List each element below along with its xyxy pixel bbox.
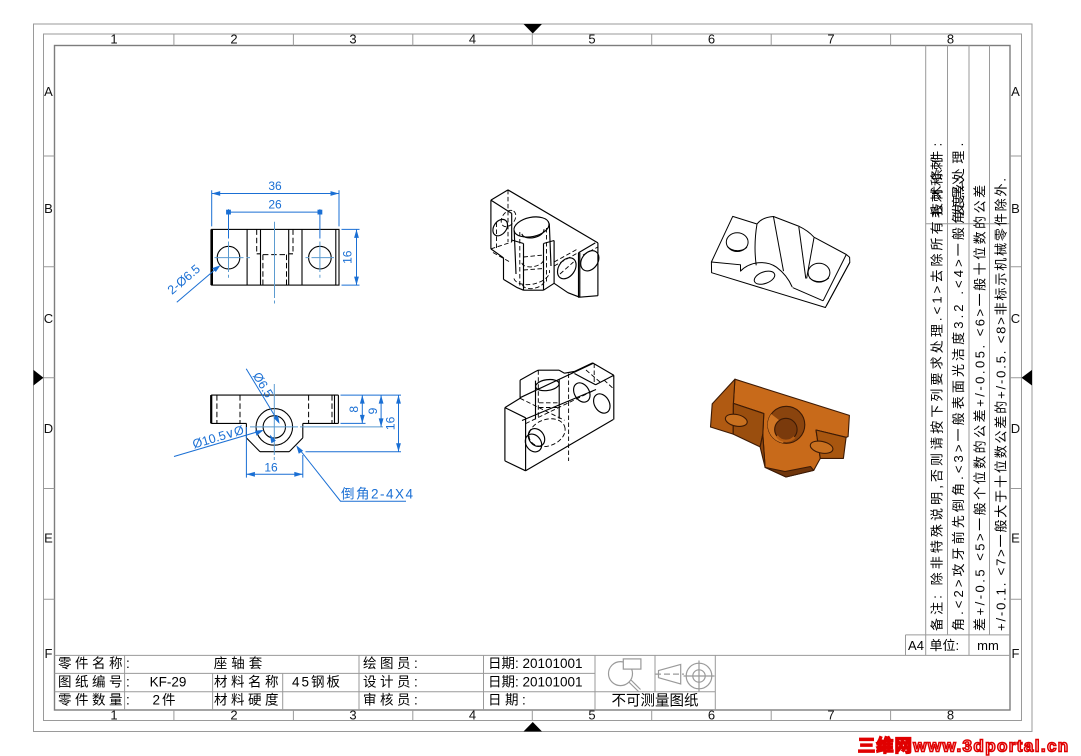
svg-text:16: 16 — [383, 416, 397, 430]
svg-text:A4: A4 — [908, 638, 924, 653]
svg-text:日期:: 日期: — [488, 693, 529, 708]
svg-text:5: 5 — [588, 32, 595, 47]
svg-text:2: 2 — [230, 708, 237, 723]
svg-text:F: F — [45, 646, 53, 661]
svg-text:1: 1 — [110, 708, 117, 723]
svg-text:16: 16 — [341, 250, 355, 264]
svg-text:9: 9 — [366, 407, 380, 414]
svg-text:B: B — [1011, 201, 1020, 216]
svg-text:角.<2>攻牙前先倒角.<3>一般表面光洁度3.2 .<4>: 角.<2>攻牙前先倒角.<3>一般表面光洁度3.2 .<4>一般角度公 — [951, 176, 966, 631]
svg-text:7: 7 — [827, 708, 834, 723]
svg-text:材料硬度: 材料硬度 — [214, 693, 282, 708]
svg-text:D: D — [44, 421, 53, 436]
svg-text:A: A — [1011, 84, 1020, 99]
svg-text:材料名称: 材料名称 — [214, 674, 282, 689]
svg-text:45钢板: 45钢板 — [292, 674, 342, 689]
svg-text:8: 8 — [347, 406, 361, 413]
svg-text:8: 8 — [947, 708, 954, 723]
svg-text:三维网www.3dportal.cn: 三维网www.3dportal.cn — [858, 736, 1070, 756]
svg-text:4: 4 — [469, 32, 476, 47]
svg-text:绘图员:: 绘图员: — [363, 656, 421, 671]
svg-text:3: 3 — [349, 708, 356, 723]
svg-text:备注: 除非特殊说明,否则请按下列要求处理.<1>去除所有毛: 备注: 除非特殊说明,否则请按下列要求处理.<1>去除所有毛刺和刺 — [930, 154, 945, 631]
svg-text:KF-29: KF-29 — [150, 674, 187, 689]
svg-text:+/-0.1. <7>一般大于十位数公差的+/-0.5. <: +/-0.1. <7>一般大于十位数公差的+/-0.5. <8>非标示机械零件除… — [994, 176, 1009, 631]
svg-text:E: E — [1011, 530, 1020, 545]
svg-text:16: 16 — [264, 461, 278, 475]
svg-text:8: 8 — [947, 32, 954, 47]
svg-text:单位:: 单位: — [930, 638, 960, 653]
svg-text:日期: 20101001: 日期: 20101001 — [488, 674, 583, 689]
svg-text:倒角2-4X4: 倒角2-4X4 — [341, 487, 415, 502]
svg-text:C: C — [1011, 311, 1020, 326]
svg-text:4: 4 — [469, 708, 476, 723]
svg-text:2: 2 — [230, 32, 237, 47]
svg-text:E: E — [44, 530, 53, 545]
svg-text:座轴套: 座轴套 — [214, 656, 267, 671]
svg-text:图纸编号:: 图纸编号: — [58, 674, 133, 689]
svg-text:mm: mm — [977, 638, 999, 653]
svg-text:6: 6 — [708, 708, 715, 723]
svg-text:36: 36 — [268, 179, 282, 193]
svg-text:F: F — [1012, 646, 1020, 661]
svg-text:设计员:: 设计员: — [363, 674, 421, 689]
svg-text:3: 3 — [349, 32, 356, 47]
svg-text:D: D — [1011, 421, 1020, 436]
svg-text:2件: 2件 — [152, 693, 177, 708]
svg-text:26: 26 — [268, 198, 282, 212]
svg-text:C: C — [44, 311, 53, 326]
svg-text:审核员:: 审核员: — [363, 693, 421, 708]
svg-text:零件数量:: 零件数量: — [58, 693, 133, 708]
svg-text:差+/-0.5 <5>一般个位数的公差+/-0.05. <6: 差+/-0.5 <5>一般个位数的公差+/-0.05. <6>一般十位数的公差 — [973, 182, 988, 631]
svg-text:不可测量图纸: 不可测量图纸 — [612, 693, 699, 710]
svg-text:B: B — [44, 201, 53, 216]
svg-text:A: A — [44, 84, 53, 99]
svg-text:零件名称:: 零件名称: — [58, 656, 133, 671]
svg-text:1: 1 — [110, 32, 117, 47]
svg-text:7: 7 — [827, 32, 834, 47]
svg-text:日期: 20101001: 日期: 20101001 — [488, 656, 583, 671]
svg-text:6: 6 — [708, 32, 715, 47]
